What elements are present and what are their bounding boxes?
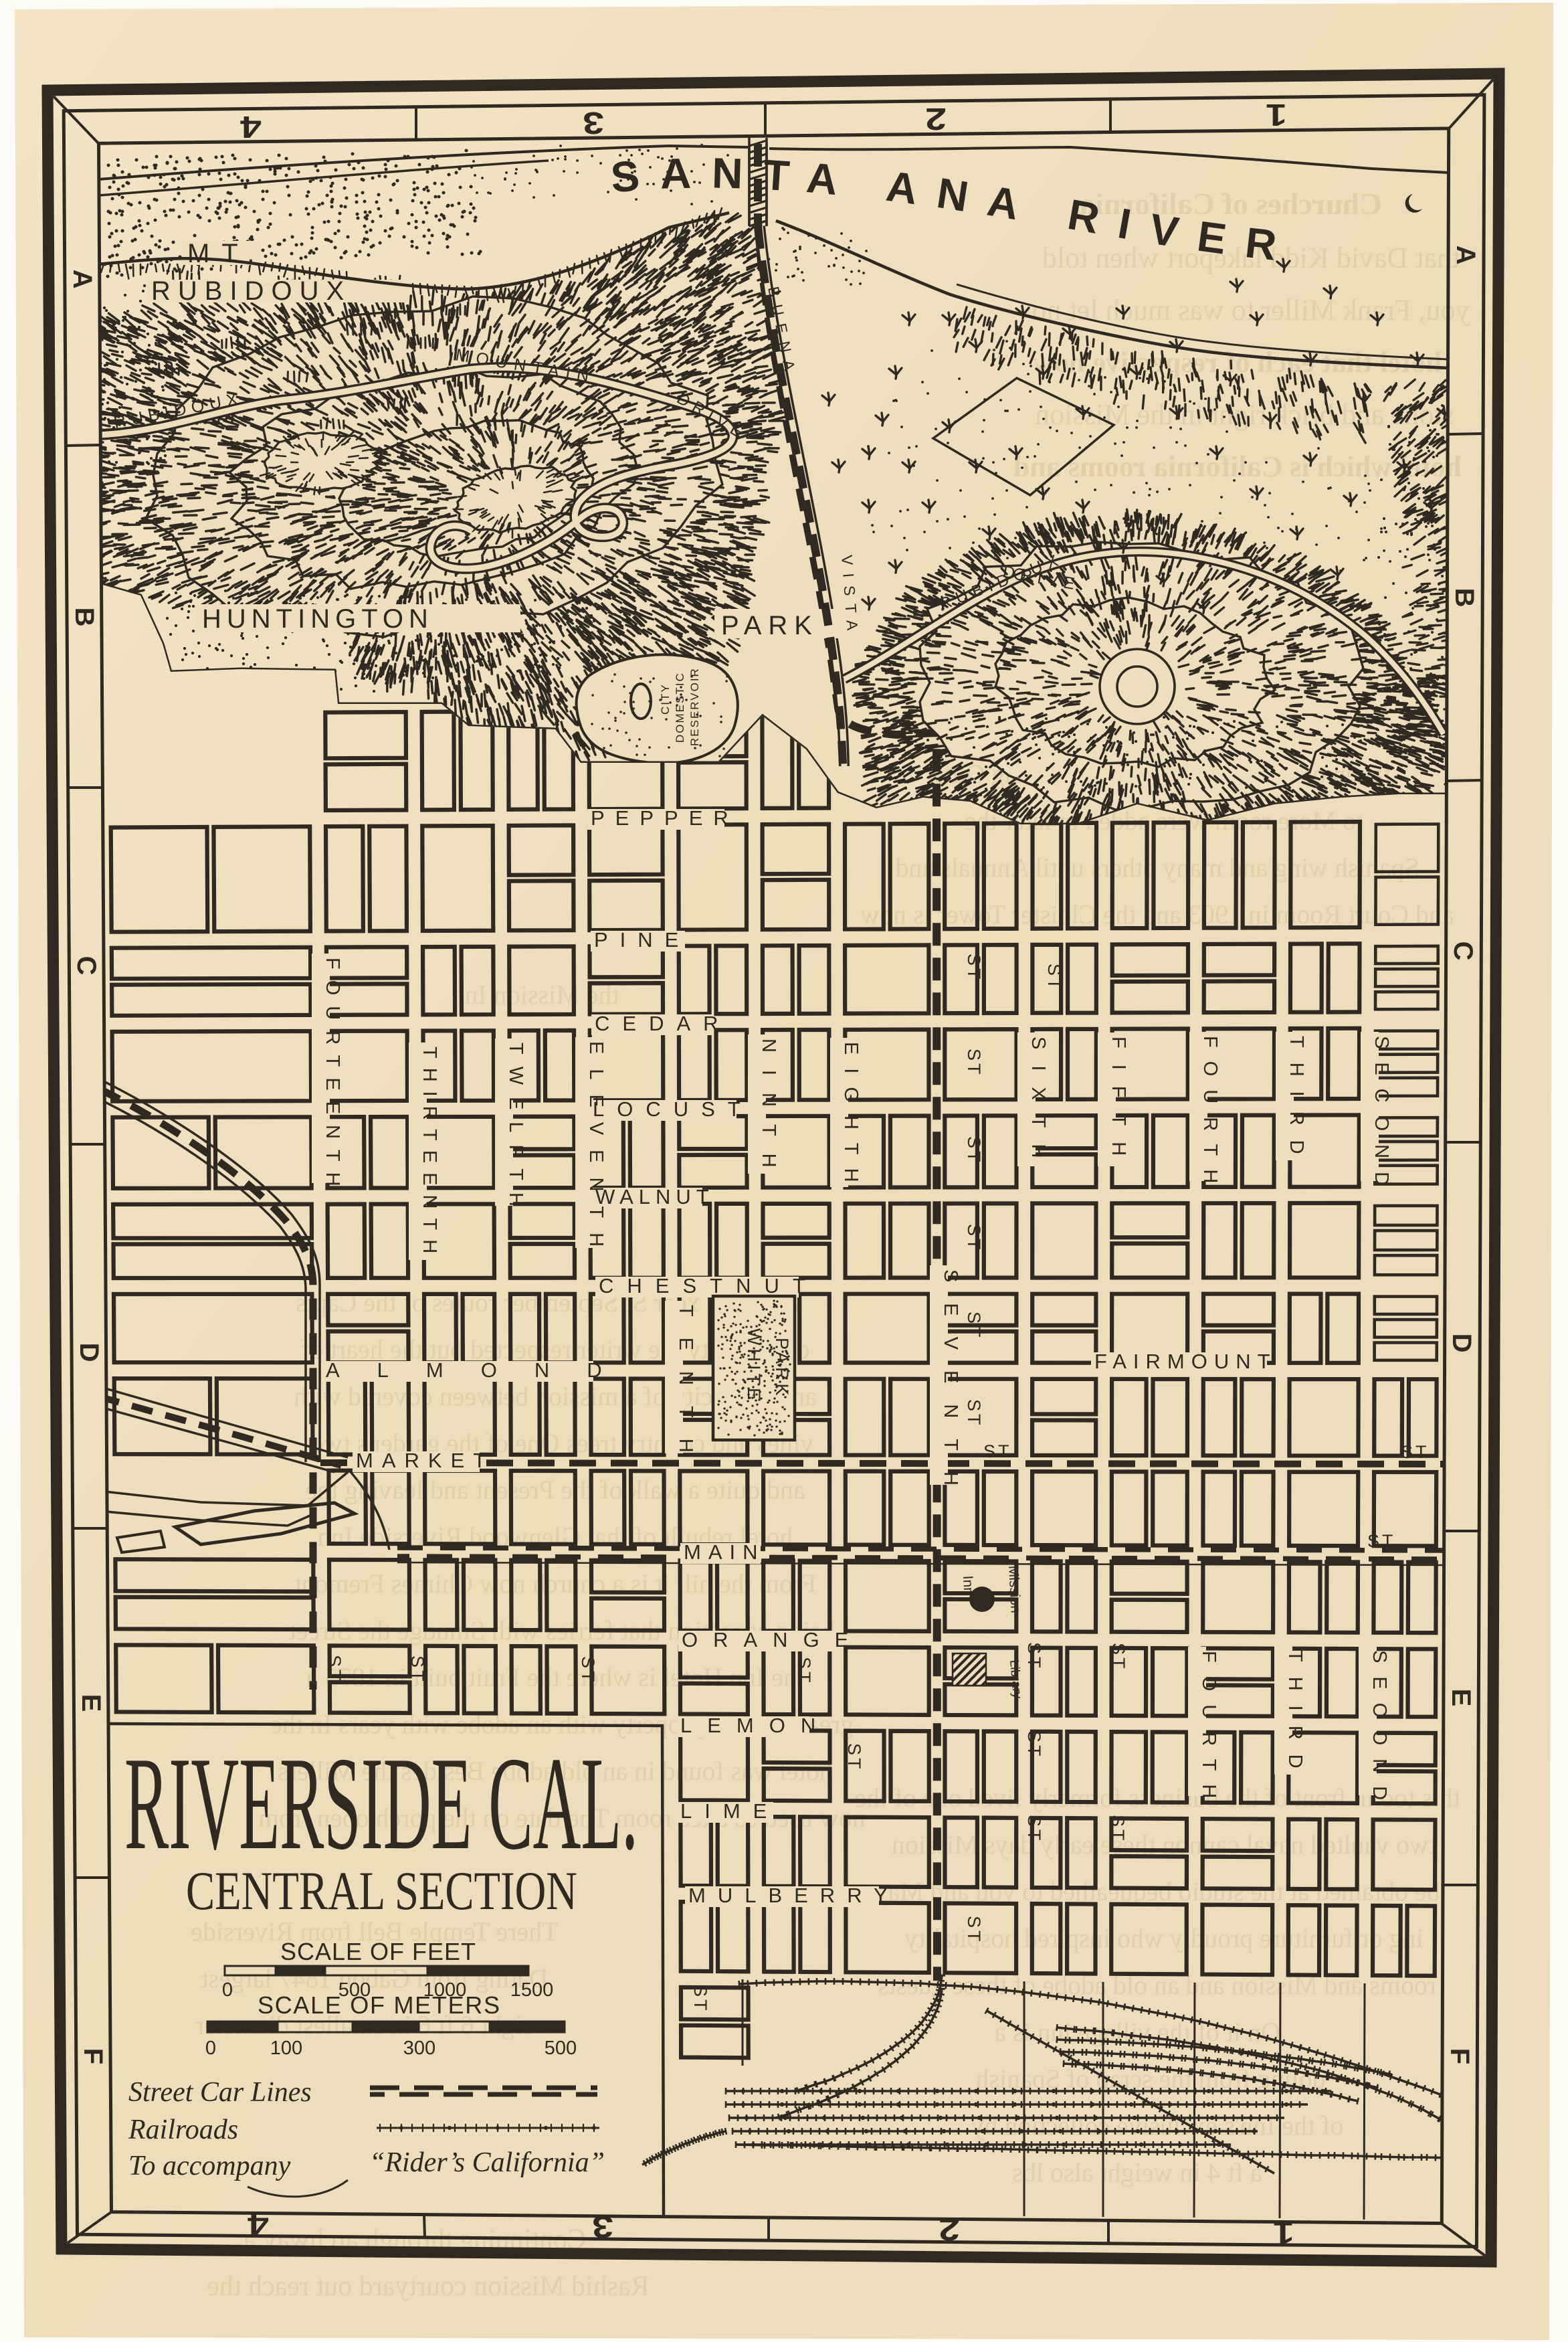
svg-text:ST: ST <box>1024 1642 1044 1671</box>
svg-text:LIME: LIME <box>680 1799 779 1823</box>
svg-text:Inn: Inn <box>960 1575 976 1595</box>
svg-text:and Court Room in 1903 and the: and Court Room in 1903 and the Cloister … <box>860 899 1454 929</box>
svg-text:ST: ST <box>964 1312 984 1340</box>
svg-text:CENTRAL SECTION: CENTRAL SECTION <box>186 1861 577 1921</box>
svg-text:MULBERRY: MULBERRY <box>688 1884 900 1907</box>
svg-text:C: C <box>72 956 101 976</box>
svg-text:ST: ST <box>690 1985 710 2013</box>
svg-text:FOURTEENTH: FOURTEENTH <box>322 958 343 1197</box>
svg-text:FIFTH: FIFTH <box>1108 1037 1129 1172</box>
svg-text:Mission: Mission <box>1005 1565 1023 1613</box>
svg-text:DOMESTIC: DOMESTIC <box>674 672 686 743</box>
svg-text:PEPPER: PEPPER <box>591 806 739 830</box>
svg-text:HUNTINGTON: HUNTINGTON <box>202 604 433 634</box>
svg-text:ST: ST <box>1044 964 1064 992</box>
svg-text:B: B <box>1450 588 1479 608</box>
svg-text:MARKET: MARKET <box>356 1449 494 1472</box>
svg-text:ST: ST <box>1024 1815 1044 1843</box>
svg-text:500: 500 <box>545 2038 577 2059</box>
svg-text:hotel that each of respective: hotel that each of respective now <box>1033 346 1442 379</box>
svg-text:MAIN: MAIN <box>684 1540 765 1564</box>
svg-text:ELEVENTH: ELEVENTH <box>585 1041 607 1261</box>
svg-text:ST: ST <box>794 1657 814 1686</box>
svg-text:ST: ST <box>578 1656 598 1685</box>
svg-text:B: B <box>70 608 99 627</box>
svg-text:Rashid Mission courtyard out r: Rashid Mission courtyard out reach the <box>207 2271 649 2302</box>
svg-text:SIXTH: SIXTH <box>1027 1037 1049 1174</box>
svg-text:Spanish wing and many others u: Spanish wing and many others until Annua… <box>895 852 1419 883</box>
svg-text:EIGHTH: EIGHTH <box>840 1042 862 1196</box>
svg-text:ST: ST <box>1108 1815 1128 1843</box>
svg-text:1: 1 <box>1266 97 1287 131</box>
svg-text:ST: ST <box>1024 1730 1044 1759</box>
svg-text:ST: ST <box>964 1916 984 1945</box>
svg-text:NINTH: NINTH <box>758 1039 779 1185</box>
svg-text:of the Inn's exclusive collect: of the Inn's exclusive collection by <box>971 2110 1343 2141</box>
svg-text:2: 2 <box>925 101 947 135</box>
svg-text:CEDAR: CEDAR <box>595 1012 731 1035</box>
svg-text:4: 4 <box>248 2206 269 2240</box>
svg-text:From the hill it is a church n: From the hill it is a church now Chimes … <box>294 1568 816 1599</box>
svg-text:3: 3 <box>583 105 604 139</box>
svg-text:ST: ST <box>1108 1643 1129 1672</box>
svg-text:A: A <box>68 270 97 289</box>
svg-text:FOURTH: FOURTH <box>1199 1036 1221 1196</box>
svg-text:Railroads: Railroads <box>128 2114 238 2145</box>
svg-text:THIRTEENTH: THIRTEENTH <box>419 1047 440 1263</box>
svg-text:SCALE OF FEET: SCALE OF FEET <box>280 1938 479 1965</box>
svg-text:1500: 1500 <box>510 1979 554 2001</box>
svg-text:C: C <box>1448 941 1478 961</box>
svg-text:WALNUT: WALNUT <box>595 1185 714 1208</box>
svg-text:ST: ST <box>1401 1442 1430 1462</box>
svg-text:RESERVOIR: RESERVOIR <box>688 667 701 746</box>
svg-text:TWELFTH: TWELFTH <box>505 1043 526 1219</box>
svg-text:SECOND: SECOND <box>1371 1036 1392 1199</box>
svg-text:LOCUST: LOCUST <box>593 1097 753 1121</box>
svg-text:ST: ST <box>964 1136 984 1165</box>
svg-text:ST: ST <box>407 1655 427 1684</box>
svg-text:stone and brick right in the M: stone and brick right in the Mission <box>1035 398 1454 431</box>
svg-text:E: E <box>1446 1689 1476 1707</box>
svg-text:FAIRMOUNT: FAIRMOUNT <box>1094 1350 1277 1373</box>
svg-text:ST: ST <box>324 1655 345 1684</box>
svg-text:0: 0 <box>222 1979 233 2001</box>
svg-text:1: 1 <box>1273 2215 1294 2249</box>
svg-text:a ft 4 in weight also lbs: a ft 4 in weight also lbs <box>1012 2157 1262 2187</box>
svg-text:SCALE OF METERS: SCALE OF METERS <box>258 1991 503 2019</box>
svg-text:2: 2 <box>939 2212 960 2246</box>
svg-text:RIVERSIDE CAL.: RIVERSIDE CAL. <box>124 1730 638 1878</box>
svg-text:ORANGE: ORANGE <box>682 1628 864 1651</box>
svg-text:CITY: CITY <box>659 683 672 715</box>
svg-text:To accompany: To accompany <box>128 2151 291 2181</box>
svg-text:THIRD: THIRD <box>1284 1650 1306 1783</box>
svg-text:THIRD: THIRD <box>1286 1036 1307 1169</box>
svg-text:CHESTNUT: CHESTNUT <box>599 1274 819 1297</box>
svg-text:PINE: PINE <box>594 928 690 952</box>
svg-text:ST: ST <box>964 1224 984 1253</box>
svg-text:ST: ST <box>964 954 984 982</box>
svg-text:0: 0 <box>205 2038 216 2059</box>
svg-text:PARK: PARK <box>721 611 819 640</box>
svg-text:ST: ST <box>983 1441 1012 1461</box>
svg-text:ST: ST <box>844 1743 864 1772</box>
svg-text:ST: ST <box>1367 1531 1396 1551</box>
svg-text:3: 3 <box>592 2209 613 2243</box>
svg-text:100: 100 <box>270 2038 302 2059</box>
svg-text:D: D <box>1447 1334 1476 1353</box>
svg-text:LEMON: LEMON <box>680 1714 831 1737</box>
svg-text:SEVENTH: SEVENTH <box>940 1269 961 1506</box>
svg-text:F: F <box>1445 2048 1474 2064</box>
svg-text:PARK: PARK <box>772 1338 792 1399</box>
svg-text:“Rider’s California”: “Rider’s California” <box>369 2147 605 2178</box>
svg-text:TENTH: TENTH <box>675 1305 696 1473</box>
svg-text:and quite a walk of the Prese: and quite a walk of the Present and leav… <box>305 1475 805 1505</box>
svg-text:Street Car Lines: Street Car Lines <box>128 2077 312 2108</box>
svg-text:4: 4 <box>240 109 262 143</box>
svg-text:ST: ST <box>964 1049 984 1077</box>
svg-text:SECOND: SECOND <box>1369 1650 1390 1813</box>
svg-text:E: E <box>76 1694 106 1712</box>
svg-text:FOURTH: FOURTH <box>1198 1651 1219 1811</box>
svg-text:F: F <box>78 2048 108 2064</box>
svg-text:D: D <box>74 1343 104 1362</box>
svg-text:WHITE: WHITE <box>744 1328 764 1403</box>
svg-text:300: 300 <box>403 2038 435 2059</box>
svg-text:ALMOND: ALMOND <box>326 1358 640 1382</box>
svg-text:RUBIDOUX: RUBIDOUX <box>151 276 351 306</box>
svg-text:A: A <box>1451 246 1480 265</box>
svg-text:ST: ST <box>964 1399 984 1428</box>
